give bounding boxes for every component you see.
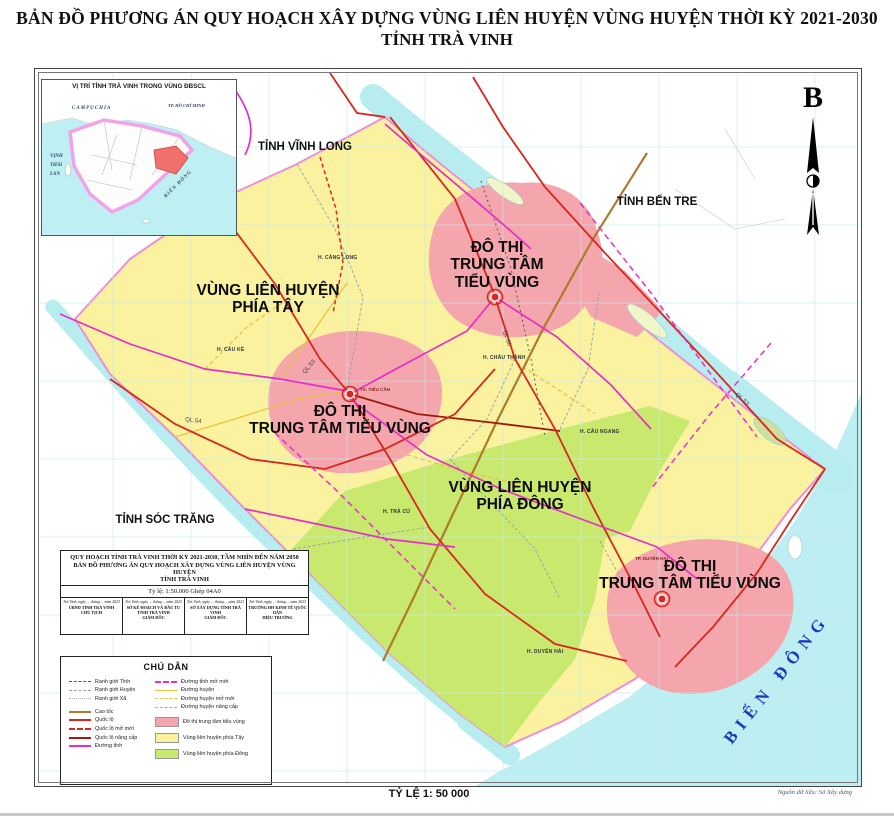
page-title: BẢN ĐỒ PHƯƠNG ÁN QUY HOẠCH XÂY DỰNG VÙNG… [0, 8, 894, 50]
label-h-cang-long: H. CÀNG LONG [318, 255, 357, 261]
legend-item: Đường tỉnh [69, 743, 153, 749]
signature-role: CHỦ TỊCH [62, 610, 121, 615]
inset-map-canvas [42, 80, 236, 235]
label-urban-se: ĐÔ THỊ TRUNG TÂM TIỂU VÙNG [565, 558, 815, 593]
district-road-upgrade-line-icon [155, 707, 177, 708]
signature-date: Trà Vinh, ngày ... tháng ... năm 2023 [124, 600, 183, 604]
legend-right-column: Đường tỉnh mở mới Đường huyện Đường huyệ… [153, 676, 271, 765]
legend-item-label: Đường huyện nâng cấp [181, 704, 238, 710]
legend-item: Ranh giới Huyện [69, 687, 153, 693]
district-road-line-icon [155, 690, 177, 691]
page-title-line2: TỈNH TRÀ VINH [0, 30, 894, 50]
label-tinh-ben-tre: TỈNH BẾN TRE [572, 196, 742, 208]
data-source-label: Nguồn dữ liệu: Sở Xây dựng [778, 789, 852, 796]
label-tinh-soc-trang: TỈNH SÓC TRĂNG [80, 514, 250, 526]
signature-date: Trà Vinh, ngày ... tháng ... năm 2023 [186, 600, 245, 604]
inset-label-hcm: TP. HỒ CHÍ MINH [168, 103, 205, 108]
inset-locator-map: VỊ TRÍ TỈNH TRÀ VINH TRONG VÙNG ĐBSCL CA… [41, 79, 237, 236]
label-h-tra-cu: H. TRÀ CÚ [383, 509, 410, 515]
label-region-east: VÙNG LIÊN HUYỆN PHÍA ĐÔNG [420, 479, 620, 514]
north-arrow: B [791, 83, 835, 237]
expressway-line-icon [69, 711, 91, 713]
province-road-line-icon [69, 745, 91, 747]
signature-date: Trà Vinh, ngày ... tháng ... năm 2023 [248, 600, 307, 604]
legend-left-column: Ranh giới Tỉnh Ranh giới Huyện Ranh giới… [61, 676, 153, 765]
page-title-line1: BẢN ĐỒ PHƯƠNG ÁN QUY HOẠCH XÂY DỰNG VÙNG… [0, 8, 894, 29]
label-h-cau-ngang: H. CẦU NGANG [580, 429, 620, 435]
district-road-new-line-icon [155, 698, 177, 699]
title-block-line3: TỈNH TRÀ VINH [61, 576, 308, 585]
legend-item-label: Vùng liên huyện phía Tây [183, 735, 244, 741]
signature-ubnd: Trà Vinh, ngày ... tháng ... năm 2023 UB… [61, 598, 123, 634]
legend-item: Ranh giới Tỉnh [69, 679, 153, 685]
label-tinh-vinh-long: TỈNH VĨNH LONG [225, 141, 385, 153]
signature-date: Trà Vinh, ngày ... tháng ... năm 2023 [62, 600, 121, 604]
legend-item-label: Ranh giới Huyện [95, 687, 135, 693]
title-block: QUY HOẠCH TỈNH TRÀ VINH THỜI KỲ 2021-203… [60, 550, 309, 635]
legend-item-label: Đường tỉnh [95, 743, 122, 749]
signature-org: SỞ XÂY DỰNG TỈNH TRÀ VINH [186, 605, 245, 615]
signature-org: SỞ KẾ HOẠCH VÀ ĐẦU TƯ TỈNH TRÀ VINH [124, 605, 183, 615]
legend-item-label: Ranh giới Tỉnh [95, 679, 130, 685]
signature-role: GIÁM ĐỐC [186, 615, 245, 620]
inset-label-vinh-thai-lan: VỊNH THÁI LAN [50, 152, 63, 179]
legend-item-label: Quốc lộ mở mới [95, 726, 134, 732]
legend-item-label: Đường tỉnh mở mới [181, 679, 228, 685]
urban-fill-swatch [155, 717, 179, 727]
map-sheet-page: BẢN ĐỒ PHƯƠNG ÁN QUY HOẠCH XÂY DỰNG VÙNG… [0, 0, 894, 822]
inset-label-campuchia: CAMPUCHIA [72, 106, 111, 111]
legend-item-label: Vùng liên huyện phía Đông [183, 751, 248, 757]
legend-item: Đường huyện [155, 687, 271, 693]
legend-item-label: Quốc lộ nâng cấp [95, 735, 137, 741]
legend-item: Đô thị trung tâm tiểu vùng [155, 717, 271, 727]
legend-item-label: Ranh giới Xã [95, 696, 126, 702]
boundary-commune-line-icon [69, 698, 91, 699]
legend-item: Cao tốc [69, 709, 153, 715]
legend-item: Đường huyện mở mới [155, 696, 271, 702]
signature-truong-dh: Trà Vinh, ngày ... tháng ... năm 2023 TR… [247, 598, 308, 634]
north-arrow-label: B [791, 83, 835, 113]
label-tx-tieu-can: TX. TIỂU CẦN [360, 387, 390, 392]
signature-org: TRƯỜNG ĐH KINH TẾ QUỐC DÂN [248, 605, 307, 615]
signature-row: Trà Vinh, ngày ... tháng ... năm 2023 UB… [61, 598, 308, 634]
signature-so-khdt: Trà Vinh, ngày ... tháng ... năm 2023 SỞ… [123, 598, 185, 634]
title-block-line2: BẢN ĐỒ PHƯƠNG ÁN QUY HOẠCH XÂY DỰNG VÙNG… [61, 561, 308, 576]
north-arrow-needle-icon [803, 115, 823, 237]
legend: CHÚ DẪN Ranh giới Tỉnh Ranh giới Huyện R… [60, 656, 272, 785]
label-h-cau-ke: H. CẦU KÈ [217, 347, 244, 353]
west-region-fill-swatch [155, 733, 179, 743]
east-region-fill-swatch [155, 749, 179, 759]
label-h-duyen-hai: H. DUYÊN HẢI [527, 649, 563, 655]
title-block-scale: Tỷ lệ: 1:50.000 Ghép 04A0 [61, 585, 308, 598]
legend-item-label: Đường huyện [181, 687, 214, 693]
label-tp-duyen-hai: TP. DUYÊN HẢI [635, 556, 668, 561]
national-road-line-icon [69, 719, 91, 721]
label-h-chau-thanh: H. CHÂU THÀNH [483, 355, 525, 361]
signature-so-xd: Trà Vinh, ngày ... tháng ... năm 2023 SỞ… [185, 598, 247, 634]
legend-item: Quốc lộ mở mới [69, 726, 153, 732]
boundary-district-line-icon [69, 690, 91, 691]
signature-role: HIỆU TRƯỞNG [248, 615, 307, 620]
legend-item: Vùng liên huyện phía Đông [155, 749, 271, 759]
province-road-new-line-icon [155, 681, 177, 683]
bottom-divider [0, 813, 894, 816]
legend-title: CHÚ DẪN [61, 662, 271, 672]
legend-item-label: Đô thị trung tâm tiểu vùng [183, 719, 245, 725]
legend-item: Quốc lộ [69, 717, 153, 723]
inset-title: VỊ TRÍ TỈNH TRÀ VINH TRONG VÙNG ĐBSCL [42, 83, 236, 90]
legend-item: Vùng liên huyện phía Tây [155, 733, 271, 743]
national-road-upgrade-line-icon [69, 737, 91, 739]
boundary-province-line-icon [69, 681, 91, 682]
label-region-west: VÙNG LIÊN HUYỆN PHÍA TÂY [168, 282, 368, 317]
national-road-new-line-icon [69, 728, 91, 730]
label-urban-mid: ĐÔ THỊ TRUNG TÂM TIỂU VÙNG [200, 403, 480, 438]
signature-role: GIÁM ĐỐC [124, 615, 183, 620]
title-block-line1: QUY HOẠCH TỈNH TRÀ VINH THỜI KỲ 2021-203… [61, 551, 308, 561]
scale-label: TỶ LỆ 1: 50 000 [0, 788, 876, 800]
legend-item: Đường tỉnh mở mới [155, 679, 271, 685]
legend-item: Đường huyện nâng cấp [155, 704, 271, 710]
label-urban-top: ĐÔ THỊ TRUNG TÂM TIỂU VÙNG [407, 239, 587, 291]
map-frame: QL.53 QL.54 QL.60 QL.53 TỈNH VĨNH LONG T… [34, 68, 862, 787]
legend-item: Ranh giới Xã [69, 696, 153, 702]
legend-item-label: Đường huyện mở mới [181, 696, 234, 702]
legend-item-label: Cao tốc [95, 709, 114, 715]
legend-item: Quốc lộ nâng cấp [69, 735, 153, 741]
legend-item-label: Quốc lộ [95, 717, 114, 723]
